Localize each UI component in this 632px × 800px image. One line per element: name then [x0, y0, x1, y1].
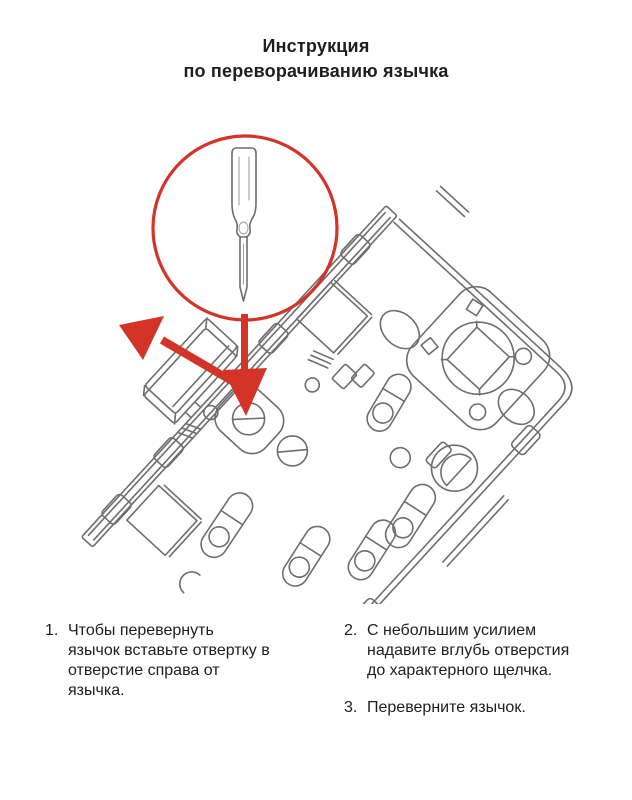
- oval-cutout: [491, 382, 541, 431]
- instructions-column-right: 2. С небольшим усилием надавите вглубь о…: [344, 621, 629, 735]
- item-number: 1.: [45, 621, 68, 701]
- item-number: 3.: [344, 698, 367, 718]
- instruction-item-3: 3. Переверните язычок.: [344, 698, 629, 718]
- item-number: 2.: [344, 621, 367, 681]
- lock-body-group: [0, 130, 632, 604]
- item-text: С небольшим усилием надавите вглубь отве…: [367, 621, 569, 681]
- lower-left-plate: [117, 483, 229, 593]
- arrow-up-left-icon: [119, 316, 249, 391]
- lock-mechanism-drawing: [0, 0, 632, 604]
- item-text: Чтобы перевернуть язычок вставьте отверт…: [68, 621, 270, 701]
- square-plate: [266, 279, 402, 415]
- instruction-item-1: 1. Чтобы перевернуть язычок вставьте отв…: [45, 621, 330, 701]
- instructions-column-left: 1. Чтобы перевернуть язычок вставьте отв…: [45, 621, 330, 718]
- oval-cutout: [373, 303, 427, 356]
- item-text: Переверните язычок.: [367, 698, 526, 718]
- instruction-item-2: 2. С небольшим усилием надавите вглубь о…: [344, 621, 629, 681]
- lock-case-edges: [30, 180, 632, 604]
- screwdriver-icon: [232, 148, 256, 301]
